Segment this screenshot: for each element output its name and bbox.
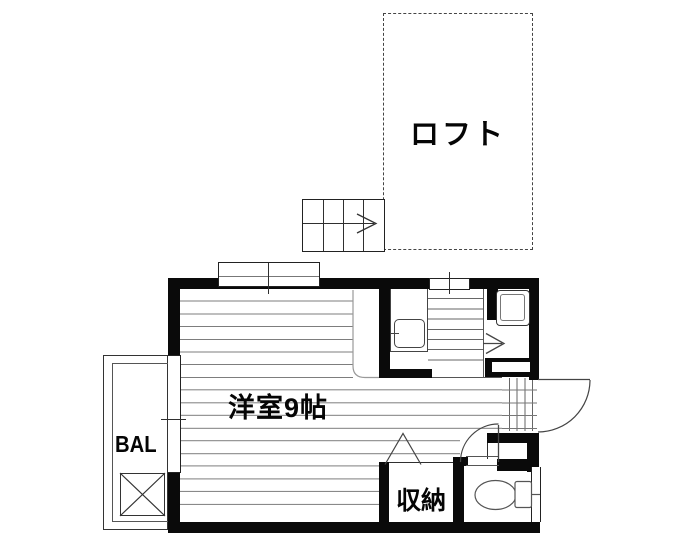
- window-center-tick: [449, 272, 450, 294]
- wall-bottom: [168, 522, 540, 533]
- stair-divider: [343, 200, 344, 251]
- main-room-floor: [180, 433, 460, 462]
- entrance-door-arc: [538, 380, 590, 432]
- wall-storage-left: [379, 462, 389, 523]
- wall-kitchen-vertical: [379, 288, 390, 378]
- washing-machine: [496, 290, 530, 326]
- toilet-window: [531, 467, 541, 522]
- room-stairs-arrow-icon: [483, 334, 504, 354]
- stair-divider: [323, 200, 324, 251]
- storage-label: 収納: [389, 481, 453, 517]
- main-room-floor: [180, 462, 379, 522]
- wall-left-upper: [168, 278, 180, 355]
- window-mullion: [219, 276, 319, 277]
- main-room-label: 洋室9帖: [228, 386, 328, 425]
- loft-stairs: [302, 199, 385, 252]
- toilet-tank: [515, 482, 532, 508]
- wall-kitchen-horizontal: [379, 369, 432, 378]
- storage-top-line: [389, 462, 453, 463]
- room-stairs: [428, 289, 483, 366]
- shoebox-inner: [492, 362, 530, 372]
- window-top-main: [218, 262, 320, 287]
- toilet-bowl: [475, 481, 516, 510]
- window-center-tick: [268, 263, 269, 294]
- loft-label: ロフト: [410, 111, 506, 153]
- balcony-utility-box: [120, 473, 165, 516]
- main-room-floor: [180, 289, 353, 380]
- room-stairs-edge: [483, 289, 484, 377]
- doorway-sill-top: [466, 456, 499, 457]
- window-balcony: [167, 355, 181, 473]
- kitchen-floor-boundary: [353, 290, 379, 378]
- washing-machine-inner: [500, 294, 525, 321]
- floorplan-canvas: ロフト: [0, 0, 700, 550]
- stair-divider: [363, 200, 364, 251]
- entrance-genkan: [502, 378, 537, 431]
- doorway-sill-bottom: [466, 465, 499, 466]
- stair-centerline: [303, 223, 374, 224]
- balcony-label: BAL: [115, 431, 157, 458]
- wall-storage-right: [453, 458, 464, 523]
- loft-area: ロフト: [383, 13, 533, 250]
